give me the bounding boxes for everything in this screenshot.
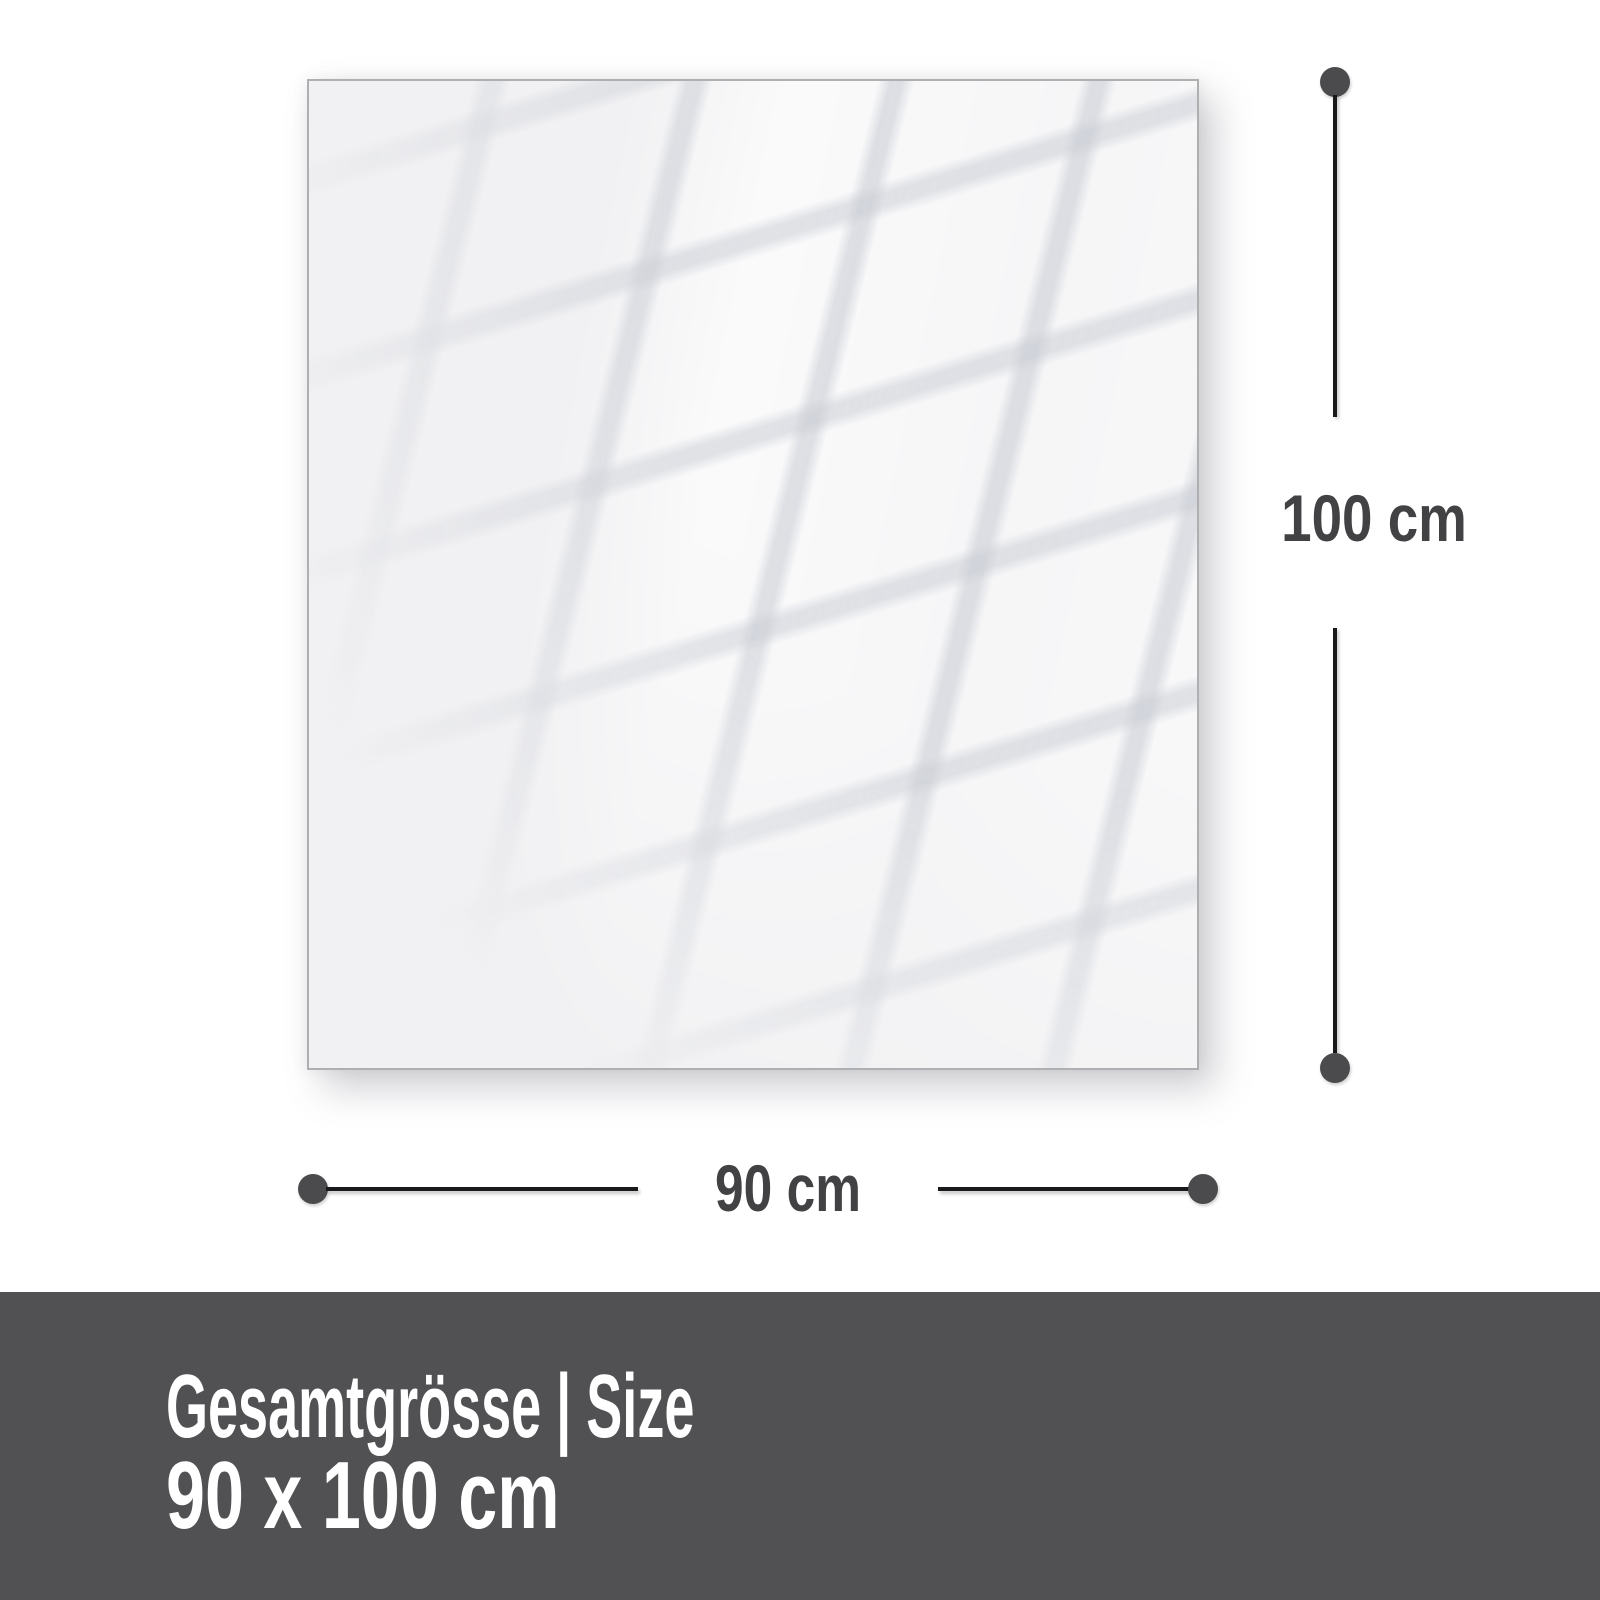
footer-bar: Gesamtgrösse | Size 90 x 100 cm xyxy=(0,1292,1600,1600)
height-dimension-dot-top xyxy=(1320,67,1350,97)
width-dimension-line-left xyxy=(326,1187,638,1191)
footer-title-text: Gesamtgrösse | Size xyxy=(166,1362,694,1452)
footer-title: Gesamtgrösse | Size xyxy=(166,1362,1047,1452)
width-dimension-dot-right xyxy=(1188,1174,1218,1204)
height-dimension-label: 100 cm xyxy=(1262,485,1486,551)
product-panel xyxy=(307,79,1199,1070)
width-dimension-line-right xyxy=(938,1187,1190,1191)
footer-size-value-text: 90 x 100 cm xyxy=(166,1448,560,1544)
height-dimension-dot-bottom xyxy=(1320,1053,1350,1083)
product-size-diagram: 100 cm 90 cm Gesamtgrösse | Size 90 x 10… xyxy=(0,0,1600,1600)
footer-size-value: 90 x 100 cm xyxy=(166,1448,705,1544)
width-dimension-dot-left xyxy=(298,1174,328,1204)
glass-reflection xyxy=(309,81,1197,1068)
height-dimension-line-lower xyxy=(1333,628,1337,1053)
height-dimension-label-text: 100 cm xyxy=(1281,485,1467,551)
width-dimension-label-text: 90 cm xyxy=(715,1155,861,1221)
width-dimension-label: 90 cm xyxy=(694,1155,881,1221)
height-dimension-line-upper xyxy=(1333,95,1337,417)
